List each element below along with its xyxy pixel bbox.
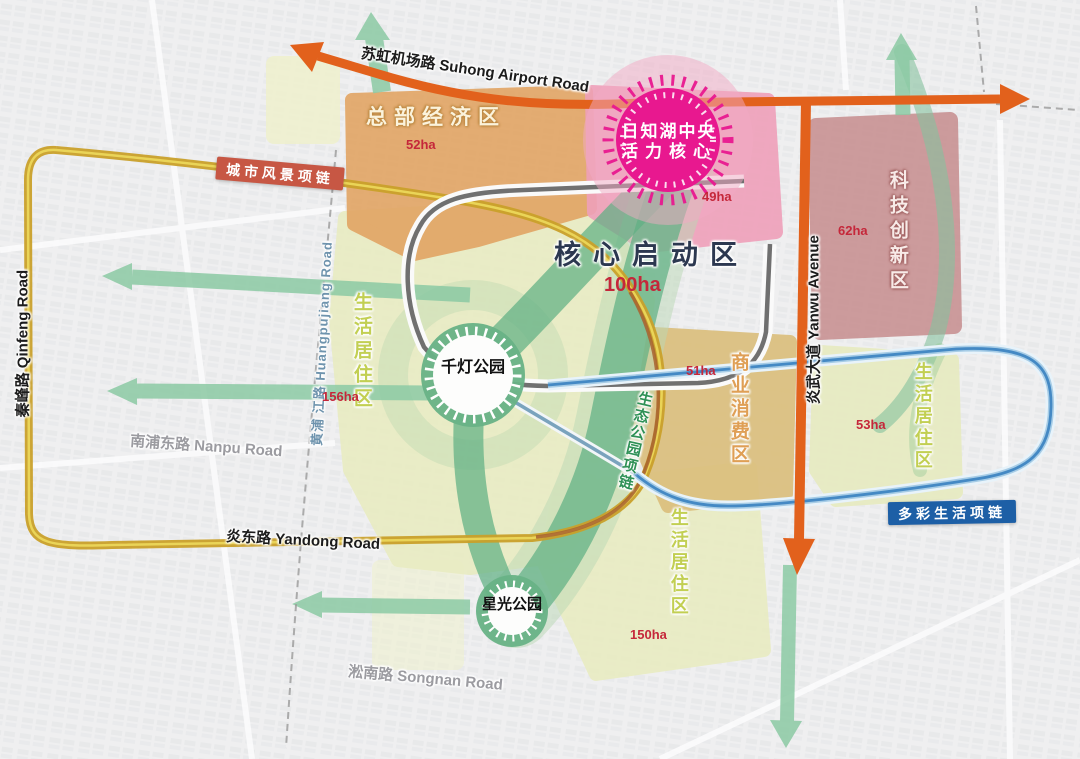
xingguang-park-label: 星光公园 — [462, 596, 562, 613]
lake-core-line1: 日知湖中央 — [622, 122, 717, 141]
zone-area-core-startup: 100ha — [604, 274, 661, 297]
zone-area-lake-core: 49ha — [702, 190, 732, 205]
zone-label-core-startup: 核心启动区 — [554, 240, 749, 271]
zone-area-headquarters: 52ha — [406, 138, 436, 153]
zone-label-commercial: 商业消费区 — [727, 352, 749, 467]
zone-area-tech: 62ha — [838, 224, 868, 239]
road-label-qinfeng: 秦峰路 Qinfeng Road — [14, 259, 31, 429]
zone-label-tech: 科技创新区 — [886, 170, 908, 295]
zone-area-life-south: 150ha — [630, 628, 667, 643]
road-label-yanwu-avenue: 炎武大道 Yanwu Avenue — [805, 205, 822, 435]
lake-core-label: 日知湖中央 活力核心 — [596, 122, 742, 161]
lake-core-line2: 活力核心 — [596, 142, 742, 162]
qiandeng-park-label: 千灯公园 — [423, 359, 523, 377]
planning-map: 苏虹机场路 Suhong Airport Road 城市风景项链 秦峰路 Qin… — [0, 0, 1080, 759]
zone-label-headquarters: 总部经济区 — [366, 106, 506, 130]
zone-area-commercial: 51ha — [686, 364, 716, 379]
zone-label-life-south: 生活居住区 — [668, 508, 689, 618]
zone-area-life-east: 53ha — [856, 418, 886, 433]
colorful-life-chain-label: 多彩生活项链 — [888, 500, 1016, 525]
zone-label-life-east: 生活居住区 — [912, 362, 933, 472]
zone-area-life-west: 156ha — [322, 390, 359, 405]
